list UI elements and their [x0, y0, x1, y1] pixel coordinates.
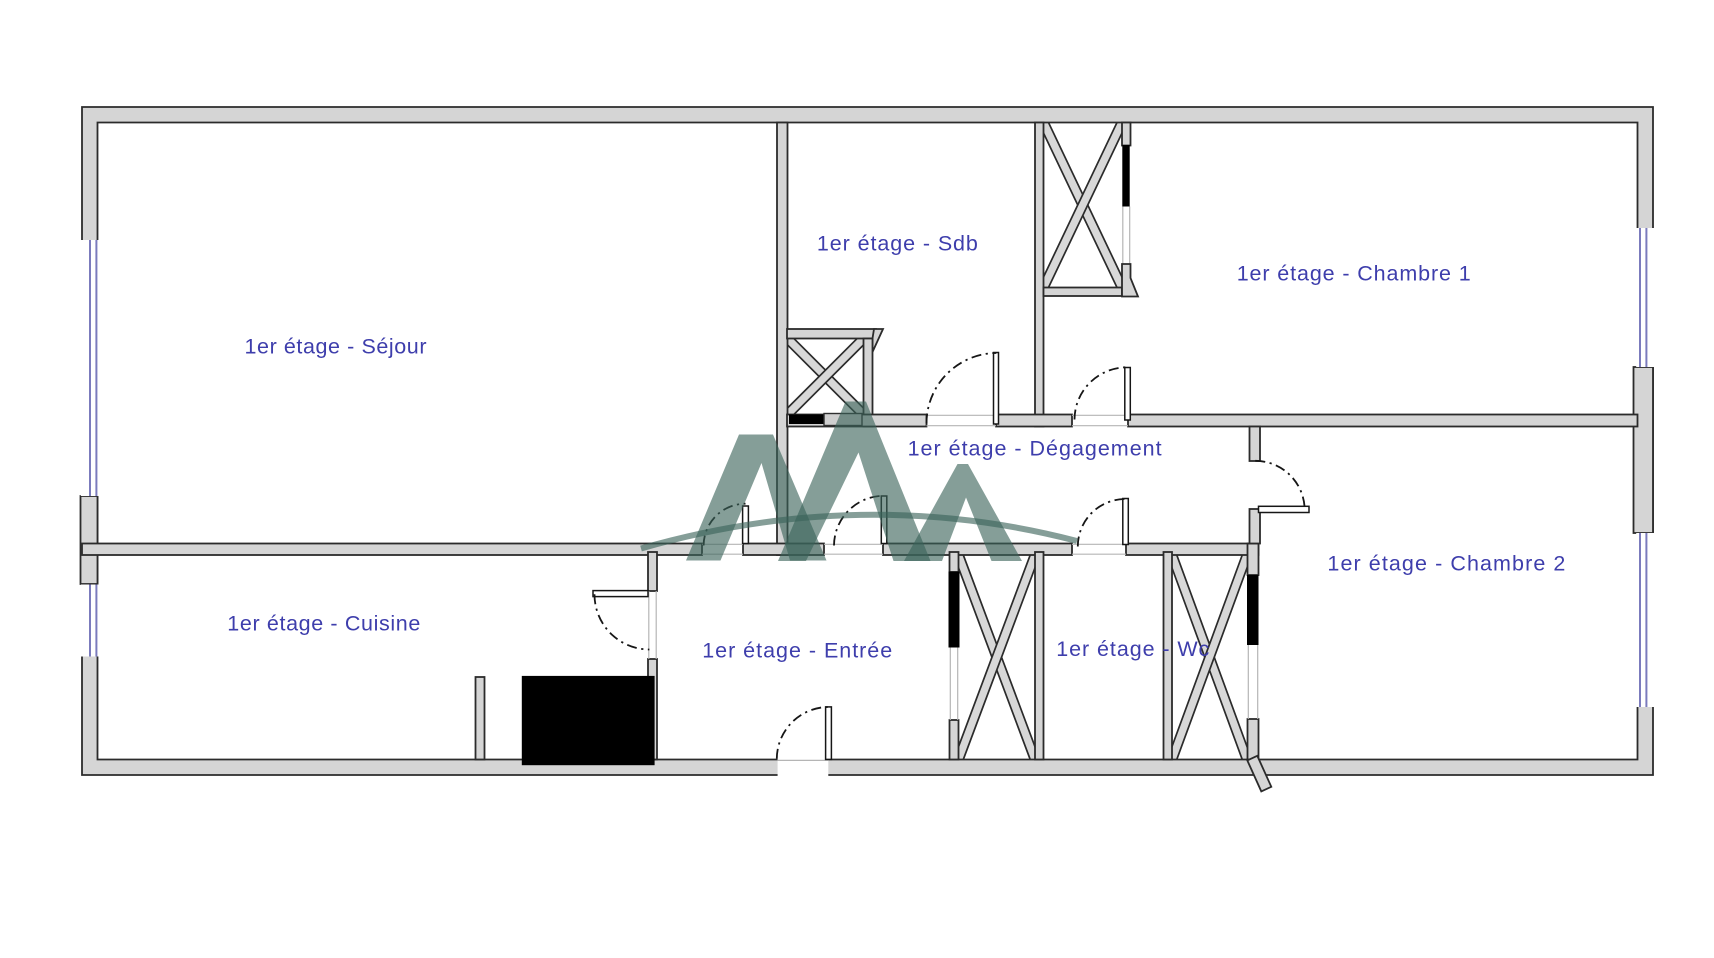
svg-text:1er étage - Cuisine: 1er étage - Cuisine	[227, 612, 420, 636]
svg-text:1er étage - Wc: 1er étage - Wc	[1056, 637, 1209, 661]
svg-text:1er étage - Entrée: 1er étage - Entrée	[702, 639, 892, 663]
svg-text:1er étage - Chambre 2: 1er étage - Chambre 2	[1327, 552, 1565, 576]
svg-text:1er étage - Sdb: 1er étage - Sdb	[817, 232, 978, 256]
svg-text:1er étage - Chambre 1: 1er étage - Chambre 1	[1237, 262, 1471, 286]
svg-text:1er étage - Dégagement: 1er étage - Dégagement	[908, 437, 1162, 461]
svg-text:1er étage - Séjour: 1er étage - Séjour	[245, 335, 427, 359]
